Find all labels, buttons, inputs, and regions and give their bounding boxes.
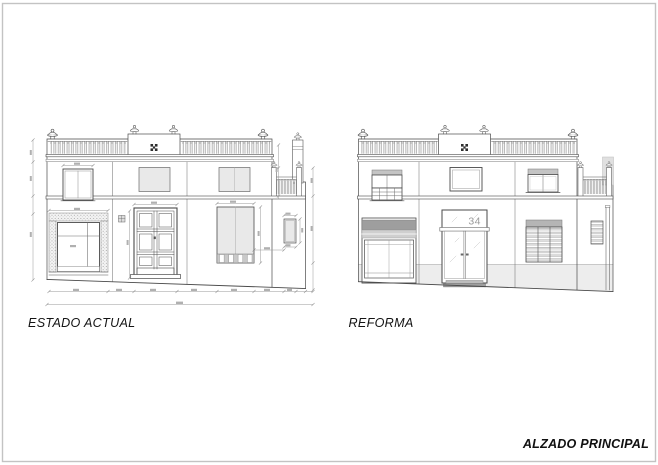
finial-icon (48, 129, 58, 139)
louvered-window (526, 220, 562, 262)
drawing-canvas: 34 ESTADO ACTUAL REFORMA ALZADO PRINC (0, 0, 658, 465)
upper-window-right (526, 169, 560, 193)
parapet-balustrade (358, 134, 579, 162)
finial-icon (258, 129, 268, 139)
estado-actual-label: ESTADO ACTUAL (28, 316, 135, 330)
upper-window-center (450, 168, 482, 192)
sheet-title: ALZADO PRINCIPAL (522, 437, 649, 451)
finial-icon (480, 125, 489, 134)
small-window (284, 219, 296, 243)
finial-icon (577, 162, 583, 168)
wall-box (119, 216, 126, 223)
entrance-door: 34 (440, 210, 489, 287)
door-knob (154, 237, 156, 240)
reforma-elevation: 34 (358, 125, 614, 291)
upper-window-right (219, 168, 250, 192)
shop-opening (49, 213, 108, 275)
small-louver-vent (591, 221, 603, 244)
door-step (446, 281, 483, 284)
balcony-window (370, 170, 404, 201)
finial-icon (441, 125, 450, 134)
shuttered-opening (217, 207, 254, 263)
finial-icon (294, 133, 301, 140)
finial-icon (130, 125, 139, 134)
door-handle (461, 254, 464, 256)
upper-window-center (139, 168, 170, 192)
finial-icon (568, 129, 578, 139)
sheet: 34 ESTADO ACTUAL REFORMA ALZADO PRINC (0, 0, 658, 465)
upper-window-left (61, 169, 95, 201)
finial-icon (169, 125, 178, 134)
panel-door (131, 208, 181, 279)
finial-icon (358, 129, 368, 139)
shopfront (362, 218, 416, 283)
estado-actual-elevation (30, 125, 315, 305)
door-handle (466, 254, 469, 256)
ground-line (47, 280, 306, 289)
parapet-balustrade (46, 134, 274, 162)
reforma-label: REFORMA (349, 316, 414, 330)
